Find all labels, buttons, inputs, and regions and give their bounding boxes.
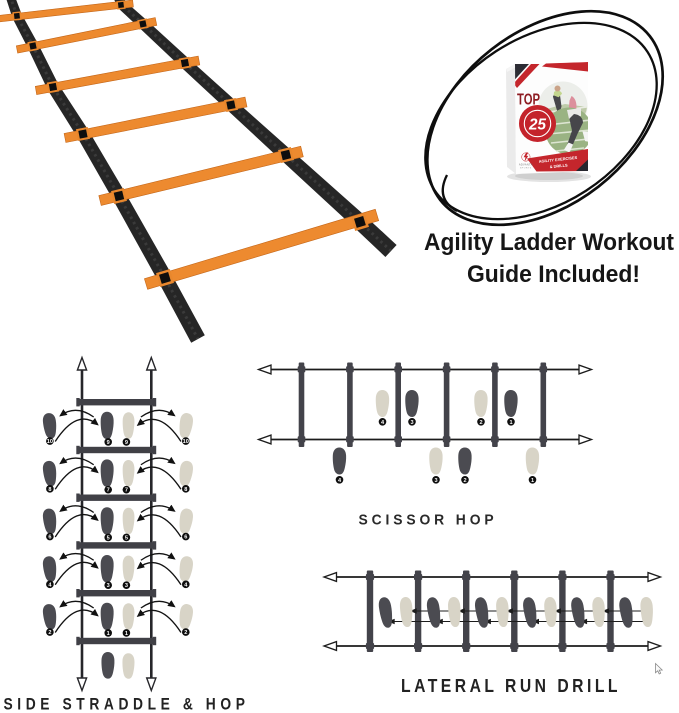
svg-text:SPORTS: SPORTS — [520, 168, 532, 170]
svg-text:5: 5 — [107, 535, 110, 541]
svg-text:2: 2 — [463, 478, 466, 484]
svg-text:3: 3 — [410, 420, 413, 426]
svg-text:8: 8 — [48, 487, 51, 493]
svg-text:2: 2 — [479, 420, 482, 426]
svg-text:1: 1 — [125, 631, 128, 637]
svg-text:25: 25 — [528, 117, 547, 134]
svg-text:SIDE STRADDLE & HOP: SIDE STRADDLE & HOP — [4, 696, 250, 713]
svg-text:6: 6 — [48, 535, 51, 541]
svg-text:9: 9 — [125, 440, 128, 446]
svg-text:TOP: TOP — [517, 92, 540, 109]
svg-text:SCISSOR HOP: SCISSOR HOP — [359, 512, 498, 529]
svg-text:1: 1 — [531, 478, 534, 484]
svg-text:7: 7 — [125, 488, 128, 494]
svg-text:10: 10 — [47, 439, 53, 445]
svg-text:10: 10 — [183, 439, 189, 445]
svg-text:5: 5 — [125, 535, 128, 541]
svg-text:2: 2 — [48, 630, 51, 636]
svg-text:3: 3 — [125, 583, 128, 589]
svg-text:9: 9 — [107, 440, 110, 446]
svg-text:7: 7 — [107, 488, 110, 494]
svg-text:3: 3 — [107, 583, 110, 589]
svg-text:1: 1 — [509, 420, 512, 426]
svg-text:6: 6 — [184, 535, 187, 541]
svg-text:3: 3 — [434, 478, 437, 484]
svg-text:Guide Included!: Guide Included! — [467, 261, 640, 288]
svg-text:ADVANTA: ADVANTA — [519, 163, 533, 167]
svg-text:Agility Ladder Workout: Agility Ladder Workout — [424, 229, 674, 256]
svg-text:1: 1 — [107, 631, 110, 637]
svg-text:LATERAL RUN DRILL: LATERAL RUN DRILL — [401, 676, 621, 696]
svg-text:8: 8 — [184, 487, 187, 493]
svg-text:2: 2 — [184, 630, 187, 636]
